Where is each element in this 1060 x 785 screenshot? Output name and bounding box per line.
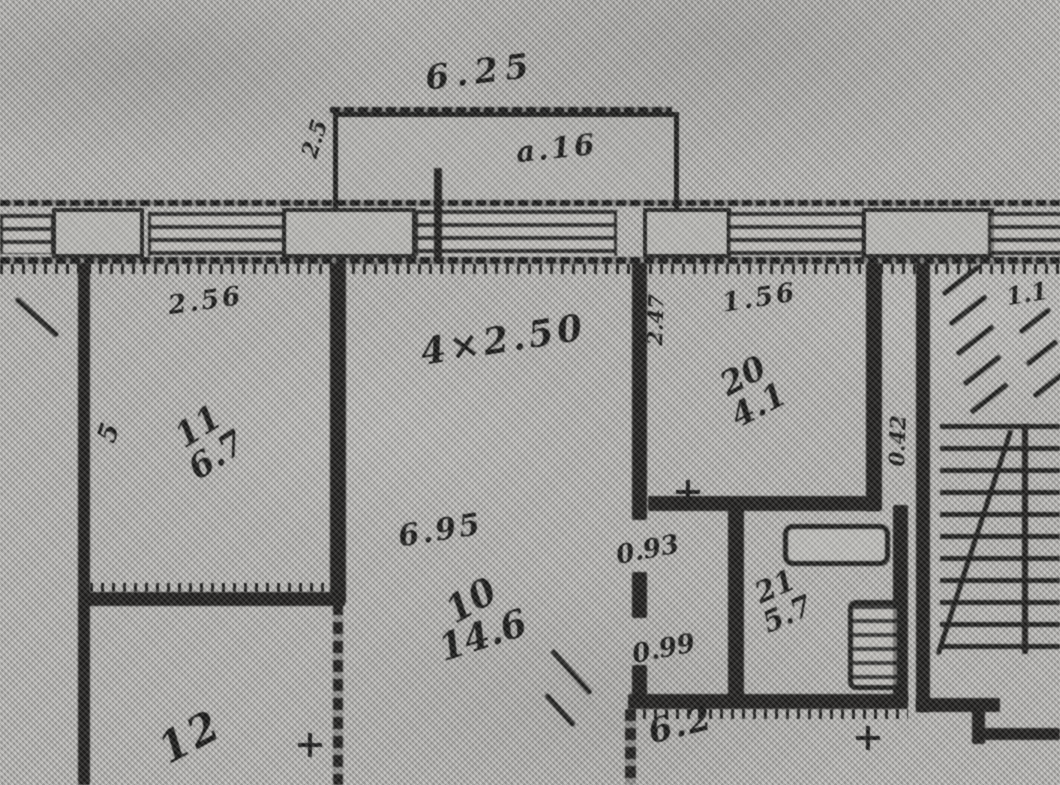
wall-left <box>78 263 90 785</box>
room20-top-dim: 1.56 <box>720 279 798 316</box>
room11-top-dim: 2.56 <box>167 283 245 319</box>
wall-room20-right <box>866 263 882 511</box>
room12-number: 12 <box>152 703 229 770</box>
wall-room11-room10 <box>330 263 346 603</box>
room20-label: 20 4.1 <box>710 348 791 432</box>
window <box>988 212 1060 256</box>
wall-segment <box>632 572 647 618</box>
stair-dash <box>962 354 1001 386</box>
stair-dash <box>1025 339 1058 366</box>
wall-pier <box>52 208 144 258</box>
floor-plan-scan: 6.25 а.16 2.5 <box>0 0 1060 785</box>
wall-pier <box>643 208 731 258</box>
wall-room12-room10 <box>333 603 343 785</box>
facade-inner-line <box>0 257 1060 264</box>
window-balcony-door <box>415 210 617 256</box>
room21-label: 21 5.7 <box>747 564 816 637</box>
facade-hatch-fringe <box>0 264 1060 274</box>
balcony-outline <box>333 112 679 210</box>
wall-pier <box>282 208 416 258</box>
window <box>727 212 865 256</box>
window-divider-wall <box>434 168 442 262</box>
wall-pier <box>862 208 994 258</box>
stair-dash <box>969 382 1008 414</box>
wall-bottom-right <box>978 728 1060 740</box>
door-dim-a: 0.93 <box>614 531 681 569</box>
radiator-fixture <box>848 600 902 690</box>
room20-right-dim: 0.42 <box>886 415 909 467</box>
window-dim-label: 4×2.50 <box>418 309 588 371</box>
door-dim-b: 0.99 <box>630 630 697 668</box>
room10-width-dim: 6.95 <box>396 510 485 553</box>
wall-room11-room12 <box>85 592 345 606</box>
window <box>0 214 54 254</box>
door-leaf <box>14 297 59 338</box>
survey-cross <box>676 480 700 504</box>
stair-stringer <box>1022 424 1028 654</box>
window <box>148 212 286 256</box>
balcony-area-label: а.16 <box>515 130 599 167</box>
balcony-side-dim: 2.5 <box>299 117 332 160</box>
wall-stairwell-bottom <box>916 698 1000 712</box>
stair-dash <box>1032 371 1060 398</box>
wall-hatch <box>90 583 340 592</box>
room11-label: 11 6.7 <box>165 397 251 485</box>
stair-dash <box>955 324 994 356</box>
wall-stairwell-left <box>916 263 930 712</box>
balcony-top-edge <box>330 107 672 113</box>
bathtub-fixture <box>783 524 890 566</box>
wall-room22-left <box>625 709 636 785</box>
survey-cross <box>856 726 880 750</box>
stair-dash <box>948 294 987 326</box>
facade-outer-line <box>0 200 1060 206</box>
room11-side-dim: 5 <box>94 420 125 446</box>
door-leaf <box>550 649 593 695</box>
room20-left-dim: 2.47 <box>644 294 667 346</box>
survey-cross <box>298 733 322 757</box>
door-leaf <box>544 693 576 728</box>
room10-label: 10 14.6 <box>423 570 531 667</box>
stair-dash <box>1018 307 1051 334</box>
balcony-width-dim: 6.25 <box>423 48 537 95</box>
stair-top-dim: 1.1 <box>1004 279 1049 309</box>
wall-room21-left <box>728 505 744 703</box>
